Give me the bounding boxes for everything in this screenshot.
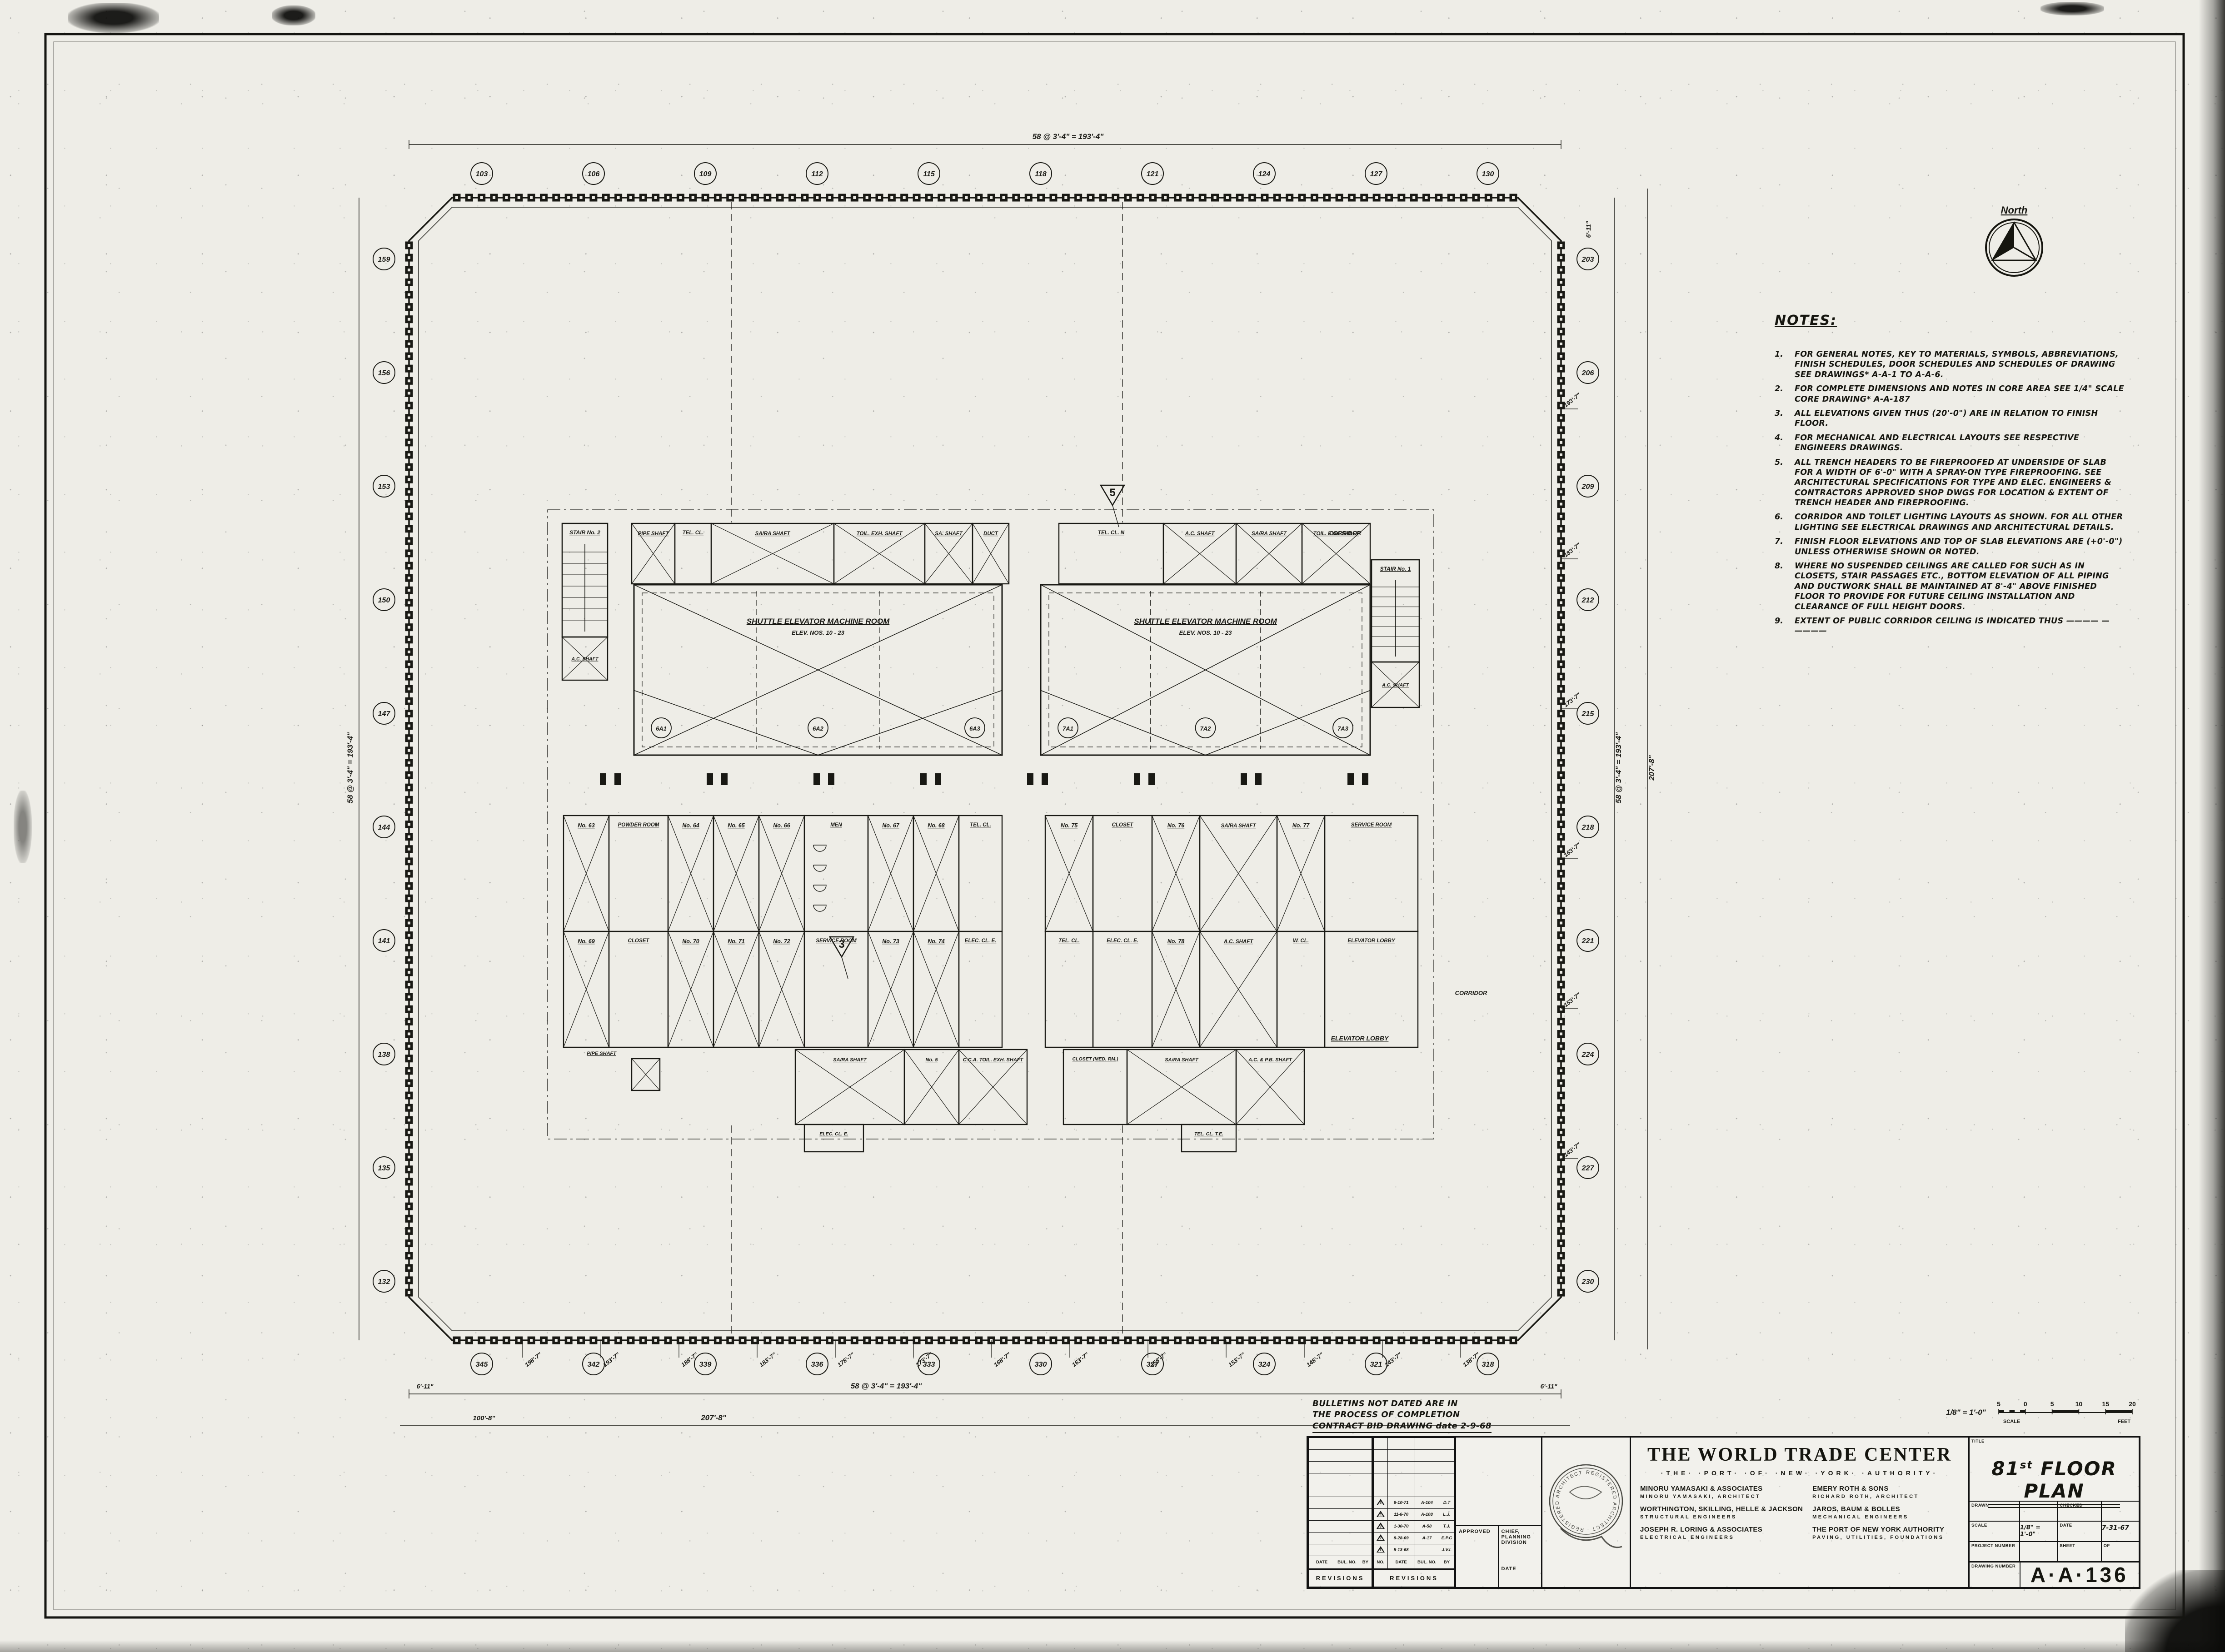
plan-label: 58 @ 3'-4" = 193'-4" — [1614, 732, 1623, 804]
revision-cell: 5 — [1374, 1497, 1388, 1509]
perimeter-column-core — [1387, 196, 1390, 199]
perimeter-column-core — [408, 836, 410, 838]
perimeter-column-core — [1560, 318, 1562, 321]
scale-bar-subblock — [1999, 1410, 2004, 1413]
core-column — [1241, 773, 1247, 785]
perimeter-column-core — [1560, 885, 1562, 887]
perimeter-column-core — [1560, 712, 1562, 715]
perimeter-column-core — [816, 1339, 818, 1342]
core-column — [1347, 773, 1354, 785]
note-text: WHERE NO SUSPENDED CEILINGS ARE CALLED F… — [1795, 561, 2125, 612]
grid-number: 159 — [378, 256, 390, 264]
perimeter-column-core — [455, 1339, 458, 1342]
perimeter-column-core — [878, 196, 881, 199]
perimeter-column-core — [1263, 1339, 1266, 1342]
revision-cell — [1359, 1544, 1372, 1556]
bulletin-line: THE PROCESS OF COMPLETION — [1312, 1409, 1531, 1420]
perimeter-column-core — [408, 921, 410, 924]
perimeter-column-core — [408, 687, 410, 690]
perimeter-column-core — [1487, 196, 1490, 199]
ref-number: 7A3 — [1337, 725, 1349, 732]
perimeter-column-core — [1560, 725, 1562, 727]
perimeter-column-core — [1040, 1339, 1043, 1342]
leader-dim: 163'-7" — [1562, 841, 1582, 859]
perimeter-column-core — [1560, 1045, 1562, 1048]
elevator-shaft-label: No. 68 — [928, 822, 945, 829]
perimeter-column-core — [778, 196, 781, 199]
scale-ratio: 1/8" = 1'-0" — [1946, 1408, 1986, 1417]
perimeter-column-core — [530, 1339, 533, 1342]
perimeter-column-core — [408, 885, 410, 887]
grid-number: 221 — [1581, 937, 1594, 945]
scale-bar-subblock — [2020, 1410, 2025, 1413]
perimeter-column-core — [518, 1339, 520, 1342]
elevator-shaft-label: No. 66 — [773, 822, 791, 829]
perimeter-column-core — [679, 1339, 682, 1342]
perimeter-column-core — [1560, 946, 1562, 949]
room-box — [1182, 1125, 1236, 1152]
perimeter-column-core — [1375, 196, 1378, 199]
note-number: 4. — [1775, 433, 1795, 453]
grid-number: 130 — [1482, 170, 1494, 178]
shaft-label: TOIL. EXH. SHAFT — [857, 531, 903, 537]
leader-dim: 153'-7" — [1227, 1351, 1247, 1368]
grid-number: 153 — [378, 483, 390, 491]
perimeter-column-core — [1251, 1339, 1254, 1342]
grid-number: 150 — [378, 597, 390, 604]
perimeter-column-core — [1450, 196, 1452, 199]
perimeter-column-core — [408, 663, 410, 666]
pipe-shaft-label: PIPE SHAFT — [587, 1051, 617, 1056]
perimeter-column-core — [1560, 1279, 1562, 1282]
stair-label: STAIR No. 1 — [1380, 566, 1411, 572]
drawing-sheet: North 1/8" = 1'-0" SCALE FEET 1031061091… — [0, 0, 2225, 1652]
perimeter-column-core — [1560, 761, 1562, 764]
grid-number: 115 — [923, 170, 935, 178]
perimeter-column-core — [1114, 196, 1117, 199]
perimeter-column-core — [408, 1180, 410, 1183]
perimeter-column-core — [1077, 1339, 1080, 1342]
perimeter-column-core — [1560, 897, 1562, 900]
revision-cell — [1309, 1450, 1335, 1462]
perimeter-column-core — [480, 1339, 483, 1342]
perimeter-column-core — [480, 196, 483, 199]
room-box — [609, 931, 668, 1047]
perimeter-column-core — [890, 1339, 893, 1342]
perimeter-column-core — [408, 417, 410, 419]
perimeter-column-core — [1512, 196, 1515, 199]
machine-room-label: SHUTTLE ELEVATOR MACHINE ROOM — [1134, 617, 1277, 626]
revision-cell — [1415, 1438, 1439, 1450]
perimeter-column-core — [1114, 1339, 1117, 1342]
grid-number: 230 — [1581, 1278, 1594, 1286]
perimeter-column-core — [1363, 196, 1366, 199]
perimeter-column-core — [408, 367, 410, 370]
plan-line — [842, 957, 848, 979]
perimeter-column-core — [1560, 1254, 1562, 1257]
leader-dim: 188'-7" — [680, 1351, 699, 1368]
perimeter-column-core — [408, 392, 410, 394]
grid-number: 215 — [1581, 710, 1595, 718]
leader-dim: 193'-7" — [1562, 391, 1582, 409]
perimeter-column-core — [408, 540, 410, 542]
scale-tick: 20 — [2129, 1400, 2136, 1408]
authority-subtitle: ·THE· ·PORT· ·OF· ·NEW· ·YORK· ·AUTHORIT… — [1640, 1469, 1959, 1477]
perimeter-column-core — [1487, 1339, 1490, 1342]
perimeter-column-core — [890, 196, 893, 199]
revision-cell — [1335, 1521, 1359, 1533]
shaft-label: SA/RA SHAFT — [1165, 1057, 1199, 1063]
north-arrow: North — [1986, 204, 2042, 276]
perimeter-column-core — [1176, 196, 1179, 199]
shaft-label: SA/RA SHAFT — [1252, 531, 1287, 537]
perimeter-column-core — [1560, 1193, 1562, 1195]
scale-bar-block — [2052, 1410, 2079, 1413]
title-number: 81 — [1991, 1458, 2020, 1480]
perimeter-column-core — [493, 1339, 495, 1342]
grid-number: 106 — [588, 170, 600, 178]
perimeter-column-core — [408, 281, 410, 284]
perimeter-column-core — [1560, 577, 1562, 579]
perimeter-column-core — [1560, 983, 1562, 986]
ref-number: 6A2 — [813, 725, 824, 732]
perimeter-column-core — [1560, 1267, 1562, 1269]
perimeter-column-core — [841, 196, 843, 199]
perimeter-column-core — [530, 196, 533, 199]
perimeter-column-core — [828, 1339, 831, 1342]
perimeter-column-core — [828, 196, 831, 199]
perimeter-column-core — [1027, 1339, 1030, 1342]
toilet-fixture — [813, 845, 826, 851]
perimeter-column-core — [408, 811, 410, 813]
perimeter-column-core — [408, 1144, 410, 1146]
revision-cell: 2 — [1374, 1533, 1388, 1544]
stair-ac-shaft-label: A.C. SHAFT — [571, 657, 599, 662]
perimeter-column-core — [928, 1339, 930, 1342]
grid-number: 318 — [1482, 1361, 1494, 1368]
note-number: 9. — [1775, 616, 1795, 637]
note-item: 4.FOR MECHANICAL AND ELECTRICAL LAYOUTS … — [1775, 433, 2125, 453]
title-block: DATEBUL. NO.BYREVISIONS 56-10-71A-104D.T… — [1307, 1436, 2140, 1589]
perimeter-column-core — [455, 196, 458, 199]
perimeter-column-core — [1350, 1339, 1353, 1342]
perimeter-column-core — [1064, 1339, 1067, 1342]
note-item: 5.ALL TRENCH HEADERS TO BE FIREPROOFED A… — [1775, 458, 2125, 508]
perimeter-column-core — [1560, 1008, 1562, 1010]
scale-tick: 15 — [2102, 1400, 2109, 1408]
perimeter-column-core — [542, 196, 545, 199]
scale-field-label: SCALE — [1970, 1522, 2020, 1541]
toilet-fixture — [813, 905, 826, 911]
room-label: POWDER ROOM — [618, 822, 659, 828]
revision-cell: NO. — [1374, 1556, 1388, 1569]
grid-number: 321 — [1370, 1361, 1382, 1368]
core-column — [813, 773, 820, 785]
revision-cell — [1439, 1450, 1454, 1462]
perimeter-column-core — [408, 490, 410, 493]
revision-cell: D.T — [1439, 1497, 1454, 1509]
perimeter-column-core — [1089, 1339, 1092, 1342]
perimeter-column-core — [1560, 244, 1562, 247]
perimeter-column-core — [408, 1156, 410, 1159]
notes-title: NOTES: — [1775, 313, 2125, 328]
perimeter-column-core — [408, 959, 410, 961]
note-text: EXTENT OF PUBLIC CORRIDOR CEILING IS IND… — [1795, 616, 2125, 637]
perimeter-column-core — [408, 1033, 410, 1035]
perimeter-column-core — [1560, 1094, 1562, 1097]
revision-cell — [1374, 1485, 1388, 1497]
grid-number: 212 — [1581, 597, 1594, 604]
perimeter-column-core — [408, 897, 410, 900]
perimeter-column-core — [1560, 700, 1562, 702]
perimeter-column-core — [1313, 196, 1316, 199]
perimeter-column-core — [408, 601, 410, 604]
note-number: 8. — [1775, 561, 1795, 612]
elevator-shaft-label: No. 71 — [728, 938, 745, 945]
perimeter-column-core — [1338, 196, 1341, 199]
plan-label: 207'-8" — [700, 1413, 727, 1422]
core-column — [1362, 773, 1368, 785]
chief-cell: CHIEF, PLANNING DIVISION DATE — [1499, 1526, 1542, 1589]
revision-cell — [1359, 1438, 1372, 1450]
grid-number: 103 — [476, 170, 488, 178]
perimeter-column-core — [1560, 1156, 1562, 1159]
perimeter-column-core — [408, 761, 410, 764]
perimeter-column-core — [642, 196, 644, 199]
perimeter-column-core — [408, 983, 410, 986]
perimeter-column-core — [1560, 1205, 1562, 1208]
perimeter-column-core — [1475, 1339, 1477, 1342]
date-field-label: DATE — [2058, 1522, 2101, 1541]
shaft-label: A.C. & P.B. SHAFT — [1248, 1057, 1292, 1063]
note-text: CORRIDOR AND TOILET LIGHTING LAYOUTS AS … — [1795, 512, 2125, 532]
revision-cell — [1335, 1485, 1359, 1497]
title-sup: st — [2020, 1459, 2033, 1471]
revision-cell: A-108 — [1415, 1509, 1439, 1521]
stair-label: STAIR No. 2 — [569, 529, 600, 536]
perimeter-column-core — [408, 737, 410, 740]
revision-cell: BY — [1439, 1556, 1454, 1569]
scale-tick: 5 — [1997, 1400, 2001, 1408]
perimeter-column-core — [940, 1339, 943, 1342]
revision-cell — [1309, 1533, 1335, 1544]
perimeter-column-core — [1560, 626, 1562, 629]
corridor-label: CORRIDOR — [1455, 990, 1487, 996]
room-box — [804, 1125, 863, 1152]
perimeter-column-core — [1560, 540, 1562, 542]
perimeter-column-core — [741, 1339, 744, 1342]
grid-number: 138 — [378, 1051, 390, 1059]
perimeter-column-core — [1560, 515, 1562, 518]
scale-unit: FEET — [2118, 1419, 2130, 1424]
grid-number: 144 — [378, 824, 390, 831]
perimeter-column-core — [1560, 1033, 1562, 1035]
perimeter-column-core — [1425, 1339, 1428, 1342]
revision-cell — [1359, 1533, 1372, 1544]
title-label: TITLE — [1970, 1438, 2139, 1445]
perimeter-column-core — [1560, 466, 1562, 468]
perimeter-column-core — [1560, 564, 1562, 567]
perimeter-column-core — [704, 1339, 707, 1342]
perimeter-column-core — [853, 196, 856, 199]
perimeter-column-core — [408, 306, 410, 309]
perimeter-column-core — [1560, 1242, 1562, 1245]
room-label: TEL. CL. — [683, 530, 704, 536]
revision-cell: DATE — [1309, 1556, 1335, 1569]
perimeter-column-core — [408, 1229, 410, 1232]
perimeter-column-core — [408, 564, 410, 567]
perimeter-column-core — [692, 1339, 694, 1342]
perimeter-column-core — [1313, 1339, 1316, 1342]
room-label: SERVICE ROOM — [1351, 822, 1392, 828]
perimeter-column-core — [1560, 749, 1562, 752]
perimeter-column-core — [408, 614, 410, 617]
revision-cell — [1335, 1509, 1359, 1521]
leader-dim: 143'-7" — [1562, 1141, 1582, 1159]
perimeter-column-core — [1560, 1168, 1562, 1171]
project-number-value — [2020, 1542, 2058, 1561]
machine-room-sub: ELEV. NOS. 10 - 23 — [1179, 629, 1232, 636]
perimeter-column-core — [408, 1094, 410, 1097]
perimeter-column-core — [408, 725, 410, 727]
perimeter-column-core — [729, 196, 732, 199]
perimeter-column-core — [1251, 196, 1254, 199]
grid-number: 206 — [1581, 369, 1594, 377]
perimeter-column-core — [1214, 196, 1217, 199]
perimeter-column-core — [468, 196, 470, 199]
perimeter-column-core — [1412, 1339, 1415, 1342]
perimeter-column-core — [1500, 1339, 1502, 1342]
perimeter-column-core — [1176, 1339, 1179, 1342]
room-label: ELEC. CL. E. — [819, 1131, 848, 1137]
core-column — [920, 773, 927, 785]
note-item: 3.ALL ELEVATIONS GIVEN THUS (20'-0") ARE… — [1775, 408, 2125, 429]
perimeter-column-core — [604, 1339, 607, 1342]
perimeter-column-core — [1560, 1070, 1562, 1072]
revision-cell: A-17 — [1415, 1533, 1439, 1544]
perimeter-column-core — [841, 1339, 843, 1342]
perimeter-column-core — [408, 1106, 410, 1109]
perimeter-column-core — [1560, 1057, 1562, 1060]
revision-cell: DATE — [1387, 1556, 1415, 1569]
perimeter-column-core — [1400, 1339, 1403, 1342]
firm-entry: JOSEPH R. LORING & ASSOCIATESELECTRICAL … — [1640, 1526, 1812, 1540]
leader-dim: 198'-7" — [524, 1351, 543, 1368]
perimeter-column-core — [866, 196, 868, 199]
core-column — [600, 773, 606, 785]
perimeter-column-core — [408, 466, 410, 468]
perimeter-column-core — [518, 196, 520, 199]
scale-tick: 10 — [2075, 1400, 2083, 1408]
sheet-of-label: OF — [2102, 1542, 2139, 1561]
perimeter-column-core — [1560, 269, 1562, 271]
perimeter-column-core — [692, 196, 694, 199]
stair-ac-shaft-label: A.C. SHAFT — [1382, 682, 1410, 688]
perimeter-column-core — [1288, 196, 1291, 199]
title-panel: TITLE 81st FLOOR PLAN DRAWN CHECKED SCAL… — [1970, 1438, 2139, 1587]
revision-cell: T.J. — [1439, 1521, 1454, 1533]
room-label: TEL. CL. — [1058, 938, 1080, 944]
note-item: 9.EXTENT OF PUBLIC CORRIDOR CEILING IS I… — [1775, 616, 2125, 637]
perimeter-column-core — [408, 946, 410, 949]
toilet-fixture — [813, 885, 826, 891]
revisions-table-right: 56-10-71A-104D.T411-6-70A-108L.J.31-30-7… — [1373, 1438, 1456, 1587]
perimeter-column-core — [1560, 601, 1562, 604]
revision-cell — [1374, 1438, 1388, 1450]
perimeter-column-core — [1560, 417, 1562, 419]
perimeter-column-core — [953, 1339, 955, 1342]
perimeter-column-core — [1560, 1144, 1562, 1146]
perimeter-column-core — [408, 1217, 410, 1220]
perimeter-column-core — [1560, 921, 1562, 924]
perimeter-column-core — [1560, 836, 1562, 838]
perimeter-column-core — [408, 503, 410, 505]
perimeter-column-core — [716, 196, 719, 199]
perimeter-column-core — [704, 196, 707, 199]
ref-number: 6A1 — [656, 725, 667, 732]
revision-cell — [1309, 1485, 1335, 1497]
revision-cell — [1415, 1462, 1439, 1473]
perimeter-column-core — [408, 429, 410, 432]
elevator-shaft-label: No. 77 — [1292, 822, 1310, 829]
perimeter-column-core — [408, 1205, 410, 1208]
perimeter-column-core — [408, 269, 410, 271]
revision-cell — [1309, 1521, 1335, 1533]
perimeter-column-core — [1560, 330, 1562, 333]
approval-blank — [1456, 1438, 1541, 1526]
perimeter-column-core — [791, 196, 794, 199]
perimeter-column-core — [408, 1045, 410, 1048]
perimeter-column-core — [604, 196, 607, 199]
elevator-shaft-label: No. 78 — [1167, 938, 1185, 945]
firm-entry: JAROS, BAUM & BOLLESMECHANICAL ENGINEERS — [1812, 1505, 1959, 1520]
leader-dim: 173'-7" — [1562, 691, 1582, 709]
elevator-shaft-label: No. 74 — [928, 938, 945, 945]
note-item: 6.CORRIDOR AND TOILET LIGHTING LAYOUTS A… — [1775, 512, 2125, 532]
revision-cell — [1335, 1462, 1359, 1473]
perimeter-column-core — [1164, 196, 1167, 199]
grid-number: 218 — [1581, 824, 1594, 831]
perimeter-column-core — [1201, 196, 1204, 199]
perimeter-column-core — [408, 860, 410, 863]
note-text: ALL TRENCH HEADERS TO BE FIREPROOFED AT … — [1795, 458, 2125, 508]
perimeter-column-core — [1015, 1339, 1018, 1342]
perimeter-column-core — [741, 196, 744, 199]
room-label: ELEVATOR LOBBY — [1347, 938, 1395, 944]
perimeter-column-core — [1560, 909, 1562, 912]
perimeter-column-core — [1064, 196, 1067, 199]
perimeter-column-core — [1102, 196, 1104, 199]
perimeter-column-core — [629, 196, 632, 199]
revision-cell — [1335, 1438, 1359, 1450]
perimeter-column-core — [803, 196, 806, 199]
shaft-label: A.C. SHAFT — [1185, 531, 1215, 537]
revision-cell: J.V.L — [1439, 1544, 1454, 1556]
shaft-label: PIPE SHAFT — [638, 531, 669, 537]
plan-label: 207'-8" — [1647, 755, 1656, 781]
revision-cell — [1387, 1438, 1415, 1450]
room-label: CLOSET — [628, 938, 650, 944]
room-label: TEL. CL. T.E. — [1194, 1131, 1223, 1137]
perimeter-column-core — [1560, 355, 1562, 358]
perimeter-column-core — [408, 1057, 410, 1060]
perimeter-column-core — [903, 196, 906, 199]
perimeter-column-core — [853, 1339, 856, 1342]
perimeter-column-core — [1560, 1082, 1562, 1085]
perimeter-column-core — [1003, 196, 1005, 199]
perimeter-column-core — [1560, 872, 1562, 875]
perimeter-column-core — [1450, 1339, 1452, 1342]
